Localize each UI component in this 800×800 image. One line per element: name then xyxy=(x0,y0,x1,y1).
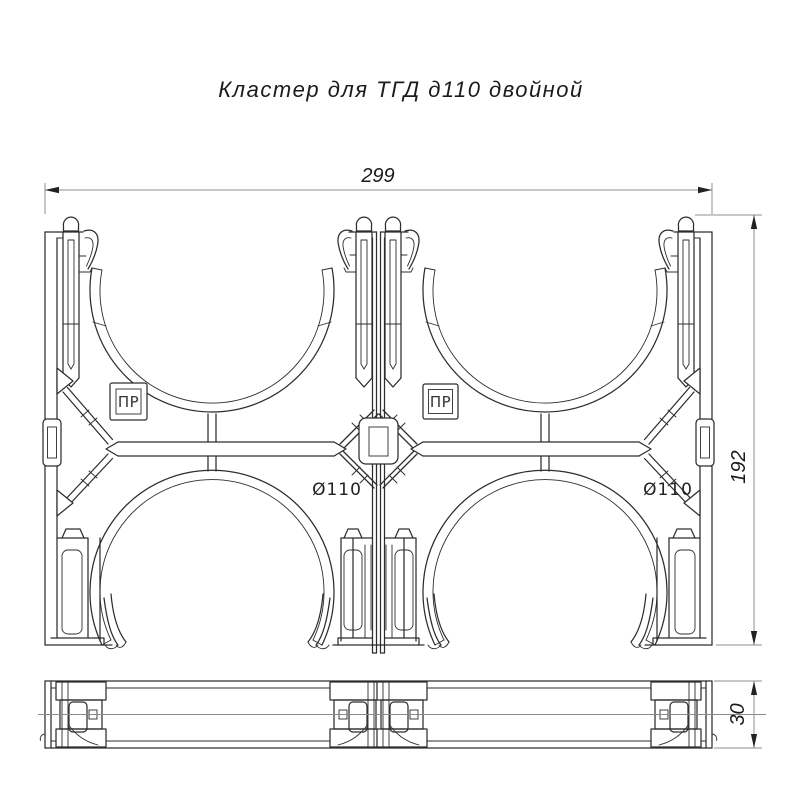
dim-width-299: 299 xyxy=(45,165,712,214)
drawing-sheet: Кластер для ТГД д110 двойной xyxy=(0,0,800,800)
mold-mark-left-text: ПР xyxy=(118,393,139,411)
mold-mark-right: ПР xyxy=(423,384,458,419)
dim-width-text: 299 xyxy=(360,165,394,187)
front-view-right-half xyxy=(379,217,715,653)
dim-height-text: 192 xyxy=(728,450,750,483)
diameter-label-left: Ø110 xyxy=(312,480,362,500)
mold-mark-right-text: ПР xyxy=(430,393,451,411)
drawing-title: Кластер для ТГД д110 двойной xyxy=(218,77,584,102)
technical-drawing: Кластер для ТГД д110 двойной xyxy=(0,0,800,800)
center-latch xyxy=(359,418,398,464)
front-view-left-half xyxy=(43,217,379,653)
mold-mark-left: ПР xyxy=(110,383,147,420)
dim-thickness-text: 30 xyxy=(727,703,749,725)
diameter-label-right: Ø110 xyxy=(643,480,693,500)
